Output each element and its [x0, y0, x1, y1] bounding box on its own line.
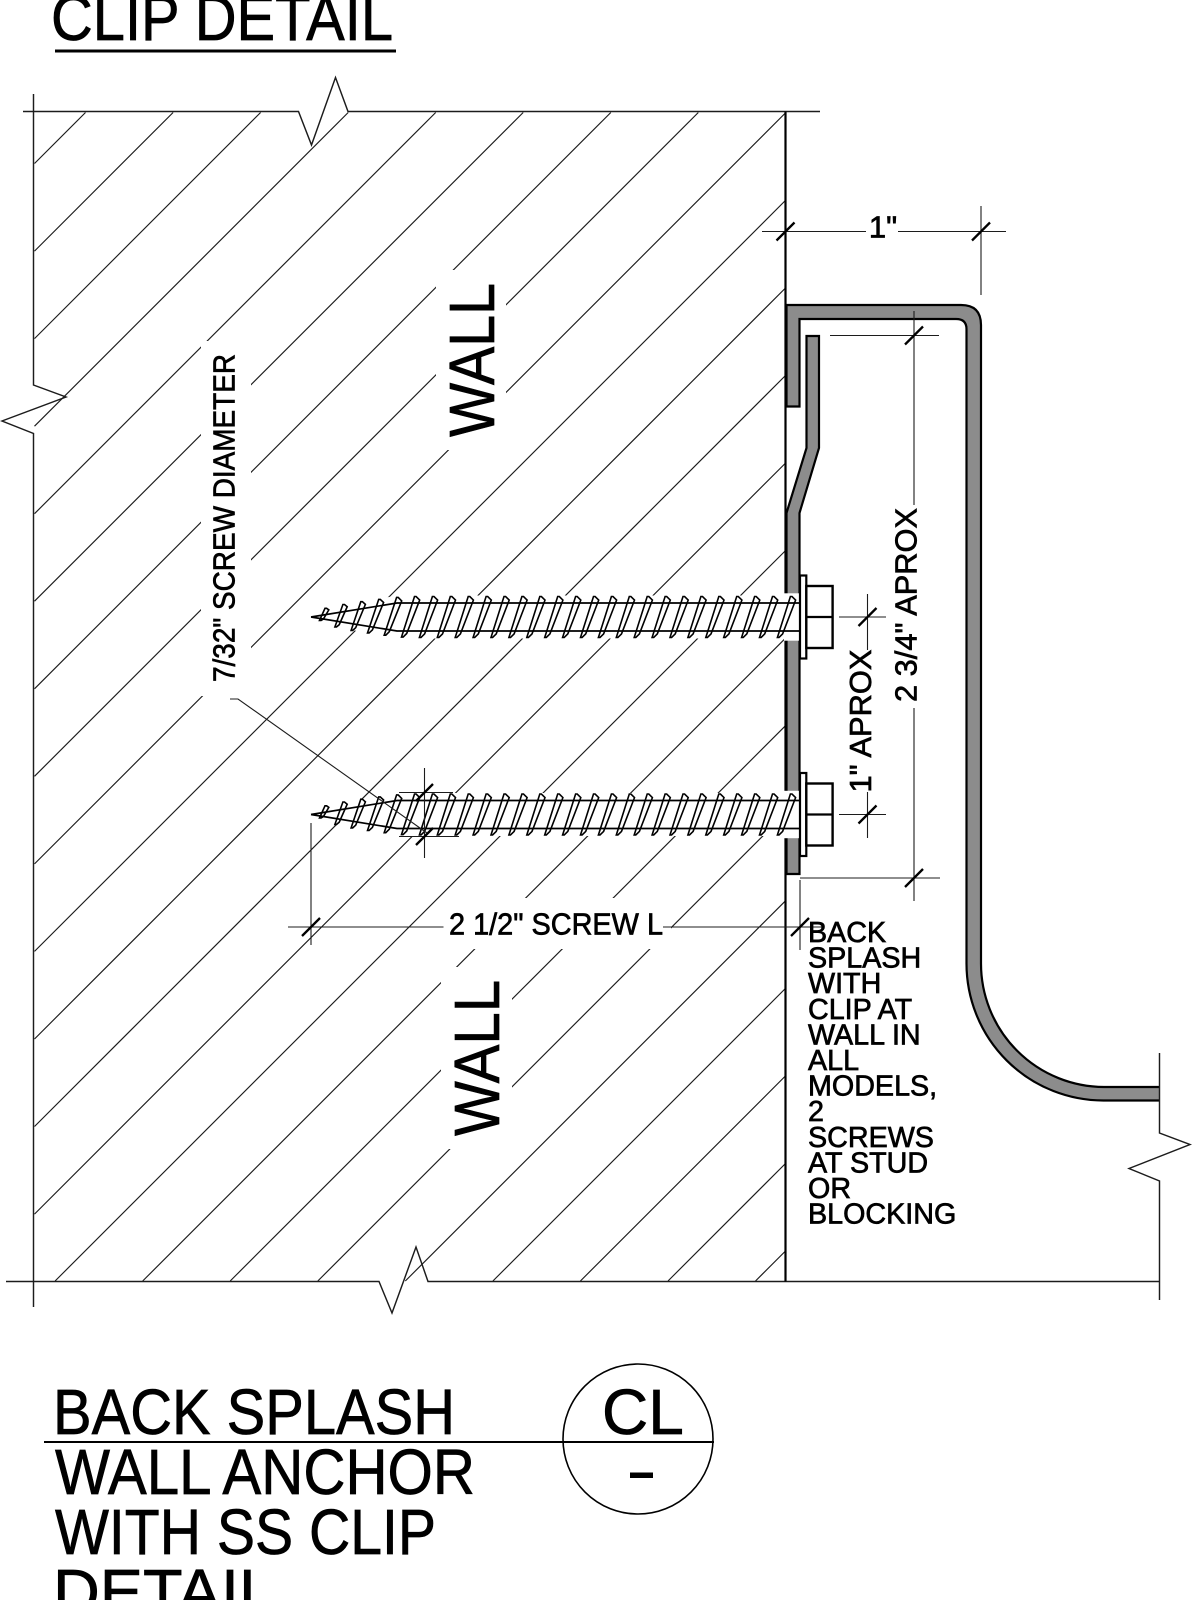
svg-text:WALL: WALL: [436, 283, 508, 437]
svg-text:BLOCKING: BLOCKING: [808, 1199, 956, 1231]
svg-text:WALL: WALL: [441, 980, 513, 1136]
svg-text:2 1/2" SCREW L: 2 1/2" SCREW L: [449, 907, 663, 942]
svg-text:7/32" SCREW DIAMETER: 7/32" SCREW DIAMETER: [207, 354, 242, 682]
svg-text:1": 1": [869, 210, 897, 245]
svg-text:CLIP DETAIL: CLIP DETAIL: [51, 0, 393, 54]
svg-text:1" APROX: 1" APROX: [843, 649, 878, 792]
svg-text:DETAIL: DETAIL: [53, 1556, 275, 1600]
svg-text:2 3/4" APROX: 2 3/4" APROX: [889, 508, 924, 702]
svg-text:CL: CL: [602, 1376, 684, 1448]
svg-text:MODELS,: MODELS,: [808, 1071, 937, 1103]
